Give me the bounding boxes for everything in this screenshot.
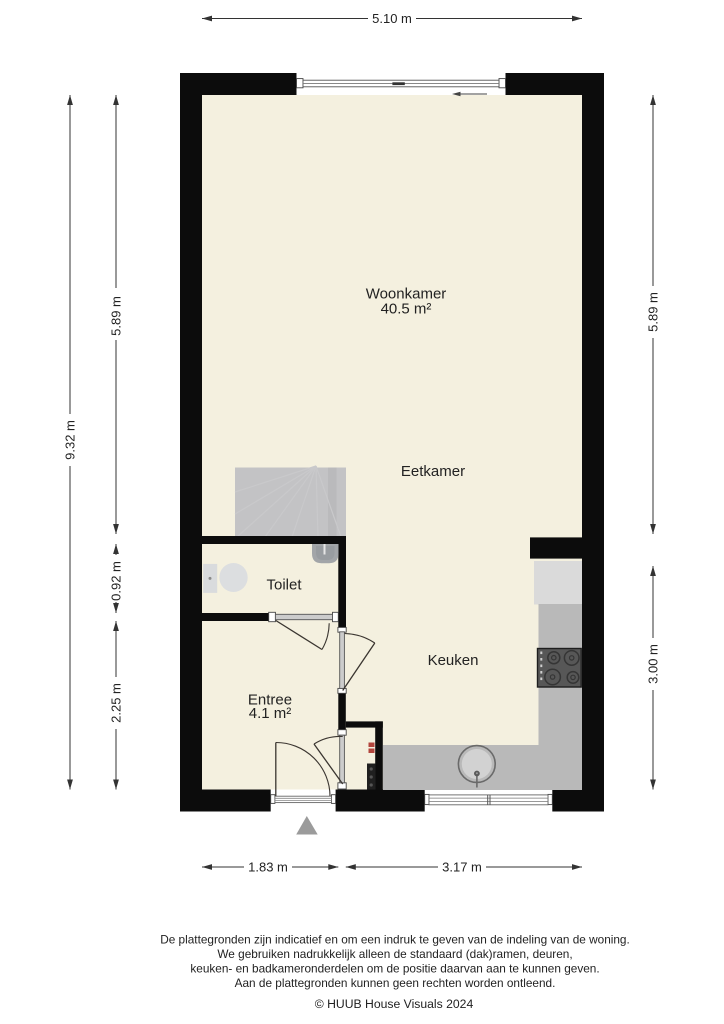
svg-text:5.10 m: 5.10 m (372, 11, 412, 26)
svg-text:5.89 m: 5.89 m (646, 292, 661, 332)
svg-text:9.32 m: 9.32 m (63, 420, 78, 460)
svg-text:Keuken: Keuken (428, 652, 479, 669)
svg-text:We gebruiken nadrukkelijk alle: We gebruiken nadrukkelijk alleen de stan… (217, 947, 572, 961)
svg-text:0.92 m: 0.92 m (109, 561, 124, 601)
svg-text:Eetkamer: Eetkamer (401, 463, 465, 480)
svg-text:Toilet: Toilet (266, 577, 302, 594)
svg-text:3.00 m: 3.00 m (646, 644, 661, 684)
svg-text:Aan de plattegronden kunnen ge: Aan de plattegronden kunnen geen rechten… (235, 976, 556, 990)
svg-text:3.17 m: 3.17 m (442, 860, 482, 875)
svg-text:1.83 m: 1.83 m (248, 860, 288, 875)
svg-text:40.5 m²: 40.5 m² (381, 301, 432, 318)
svg-text:© HUUB House Visuals 2024: © HUUB House Visuals 2024 (315, 997, 474, 1011)
svg-text:De plattegronden zijn indicati: De plattegronden zijn indicatief en om e… (160, 933, 630, 947)
svg-text:keuken- en badkameronderdelen: keuken- en badkameronderdelen om de posi… (190, 962, 599, 976)
svg-text:5.89 m: 5.89 m (109, 296, 124, 336)
svg-text:4.1 m²: 4.1 m² (249, 705, 292, 722)
svg-text:2.25 m: 2.25 m (109, 683, 124, 723)
